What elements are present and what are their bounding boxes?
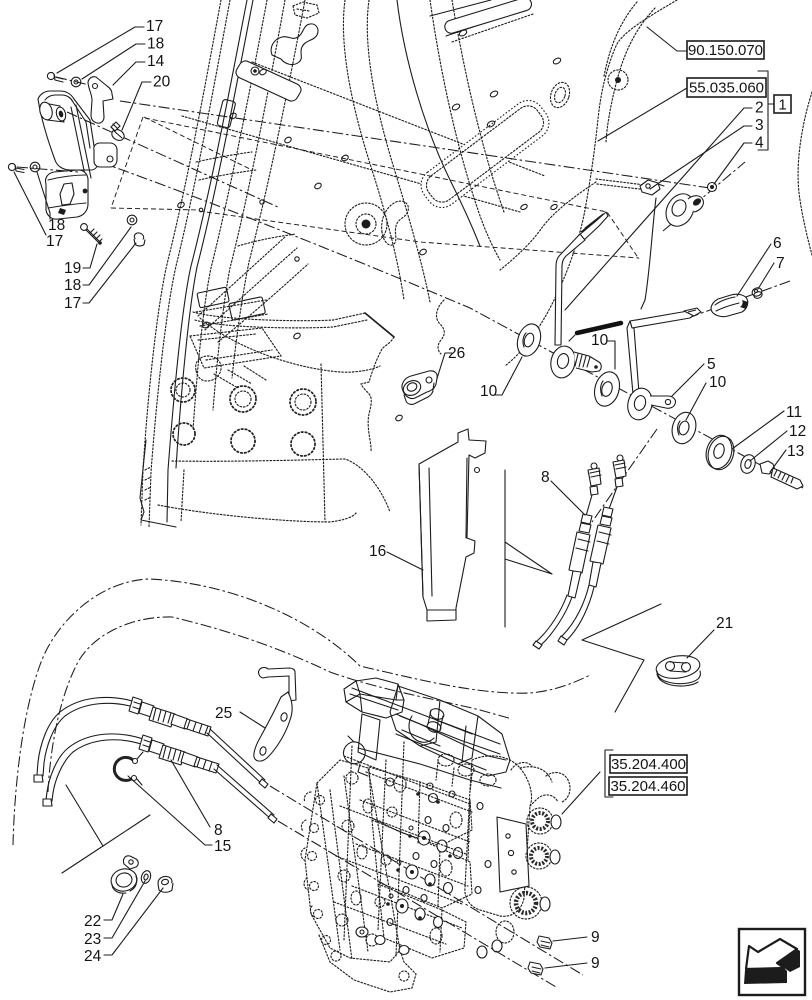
svg-text:18: 18 (147, 36, 164, 53)
svg-text:16: 16 (369, 543, 386, 560)
svg-text:13: 13 (787, 443, 804, 460)
svg-text:23: 23 (84, 931, 101, 948)
svg-text:55.035.060: 55.035.060 (689, 80, 764, 97)
svg-text:17: 17 (146, 18, 163, 35)
svg-text:9: 9 (591, 929, 600, 946)
svg-text:18: 18 (64, 277, 81, 294)
svg-text:24: 24 (84, 948, 102, 965)
svg-text:8: 8 (541, 469, 550, 486)
svg-text:2: 2 (755, 100, 764, 117)
svg-text:25: 25 (215, 705, 232, 722)
svg-text:7: 7 (776, 255, 785, 272)
svg-text:35.204.460: 35.204.460 (610, 778, 685, 795)
svg-text:3: 3 (755, 117, 764, 134)
svg-text:20: 20 (153, 74, 171, 91)
svg-text:1: 1 (778, 97, 786, 114)
svg-text:18: 18 (48, 217, 65, 234)
svg-text:10: 10 (591, 332, 609, 349)
svg-text:6: 6 (773, 235, 782, 252)
svg-text:5: 5 (707, 356, 716, 373)
svg-text:17: 17 (46, 233, 63, 250)
svg-text:8: 8 (214, 822, 223, 839)
svg-text:14: 14 (147, 53, 165, 70)
svg-text:12: 12 (789, 423, 806, 440)
svg-text:90.150.070: 90.150.070 (688, 42, 763, 59)
svg-text:4: 4 (755, 135, 764, 152)
svg-text:35.204.400: 35.204.400 (611, 756, 686, 773)
svg-text:19: 19 (64, 260, 81, 277)
svg-text:15: 15 (214, 838, 231, 855)
svg-text:22: 22 (84, 913, 101, 930)
svg-text:17: 17 (64, 295, 81, 312)
svg-text:9: 9 (591, 955, 600, 972)
svg-text:10: 10 (709, 374, 727, 391)
svg-text:21: 21 (716, 615, 733, 632)
svg-text:11: 11 (786, 404, 802, 421)
svg-text:10: 10 (480, 383, 498, 400)
svg-text:26: 26 (448, 345, 465, 362)
